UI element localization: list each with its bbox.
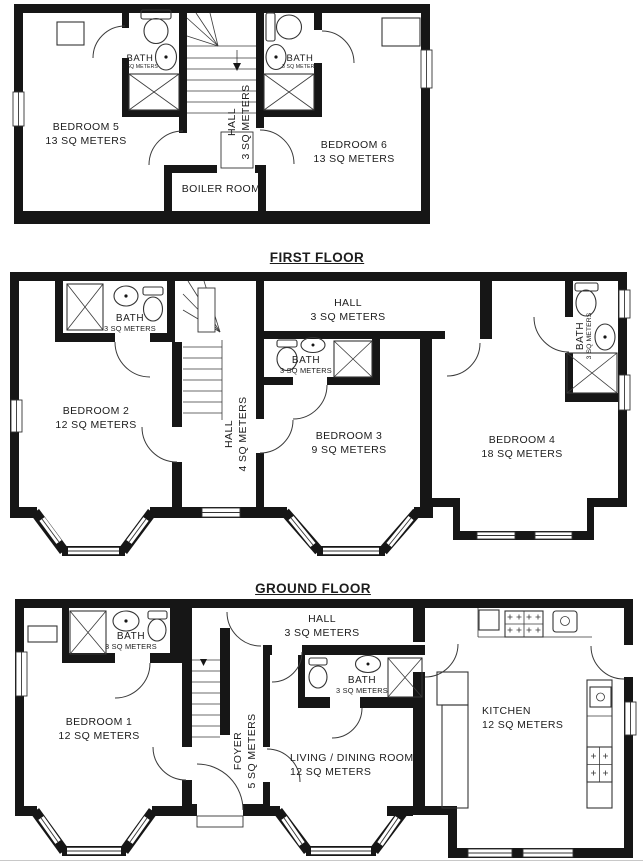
windows [13,50,432,126]
door-arc [153,747,186,780]
room-label-bath-bedroom1: BATH 3 SQ METERS [91,631,171,651]
room-label-living-dining: LIVING / DINING ROOM 12 SQ METERS [290,751,460,779]
room-label-bedroom-1: BEDROOM 1 12 SQ METERS [29,715,169,743]
door-arc [534,317,569,352]
door-arc [272,652,302,682]
room-label-hall-stairs-1f: HALL 4 SQ METERS [222,384,250,484]
door-arc [332,708,362,738]
room-label-hall-2f: HALL 3 SQ METERS [225,67,253,177]
fridge-icon [479,610,499,630]
kitchen-sink-icon [553,611,577,632]
room-label-bath-6: BATH 3 SQ METERS [265,54,335,71]
door-arc [447,343,480,376]
room-label-bath-bedroom2: BATH 3 SQ METERS [90,313,170,333]
back-door-arc [591,646,624,679]
room-label-boiler-room: BOILER ROOM [166,182,276,196]
wardrobe-icon [382,18,420,46]
door-arc [293,385,327,419]
room-label-bedroom-5: BEDROOM 5 13 SQ METERS [16,120,156,148]
toilet-icon [309,658,327,665]
room-label-bath-middle-ground: BATH 3 SQ METERS [317,675,407,695]
front-step [197,816,243,827]
room-label-kitchen: KITCHEN 12 SQ METERS [482,704,612,732]
door-arc [142,427,177,462]
door-arc [115,663,150,698]
room-label-bedroom-2: BEDROOM 2 12 SQ METERS [26,404,166,432]
toilet-icon [266,13,275,41]
toilet-icon [277,340,297,347]
room-label-bedroom-4: BEDROOM 4 18 SQ METERS [447,433,597,461]
floor-heading-first: FIRST FLOOR [217,250,417,265]
room-label-hall-ground: HALL 3 SQ METERS [262,612,382,640]
toilet-icon [148,611,167,619]
room-label-hall-upper-1f: HALL 3 SQ METERS [288,296,408,324]
floorplan-page: BATH 3 SQ METERS BATH 3 SQ METERS HALL 3… [0,0,643,863]
counter [437,672,468,705]
room-label-foyer: FOYER 5 SQ METERS [231,696,259,806]
toilet-icon [143,287,163,295]
floor-heading-ground: GROUND FLOOR [203,581,423,596]
room-label-bedroom-3: BEDROOM 3 9 SQ METERS [279,429,419,457]
door-arc [115,342,150,377]
stair-arrow-icon [200,659,207,666]
wardrobe-icon [57,22,84,45]
stairs-icon [183,281,222,420]
room-label-bath-bedroom4: BATH 3 SQ METERS [575,298,597,374]
room-label-bath-bedroom3: BATH 3 SQ METERS [261,355,351,375]
wardrobe-icon [28,626,57,642]
room-label-bath-5: BATH 3 SQ METERS [105,54,175,71]
stairs-icon [192,659,220,737]
door-arc [227,612,261,646]
bottom-divider [0,860,643,861]
room-label-bedroom-6: BEDROOM 6 13 SQ METERS [284,138,424,166]
counter [587,680,612,808]
